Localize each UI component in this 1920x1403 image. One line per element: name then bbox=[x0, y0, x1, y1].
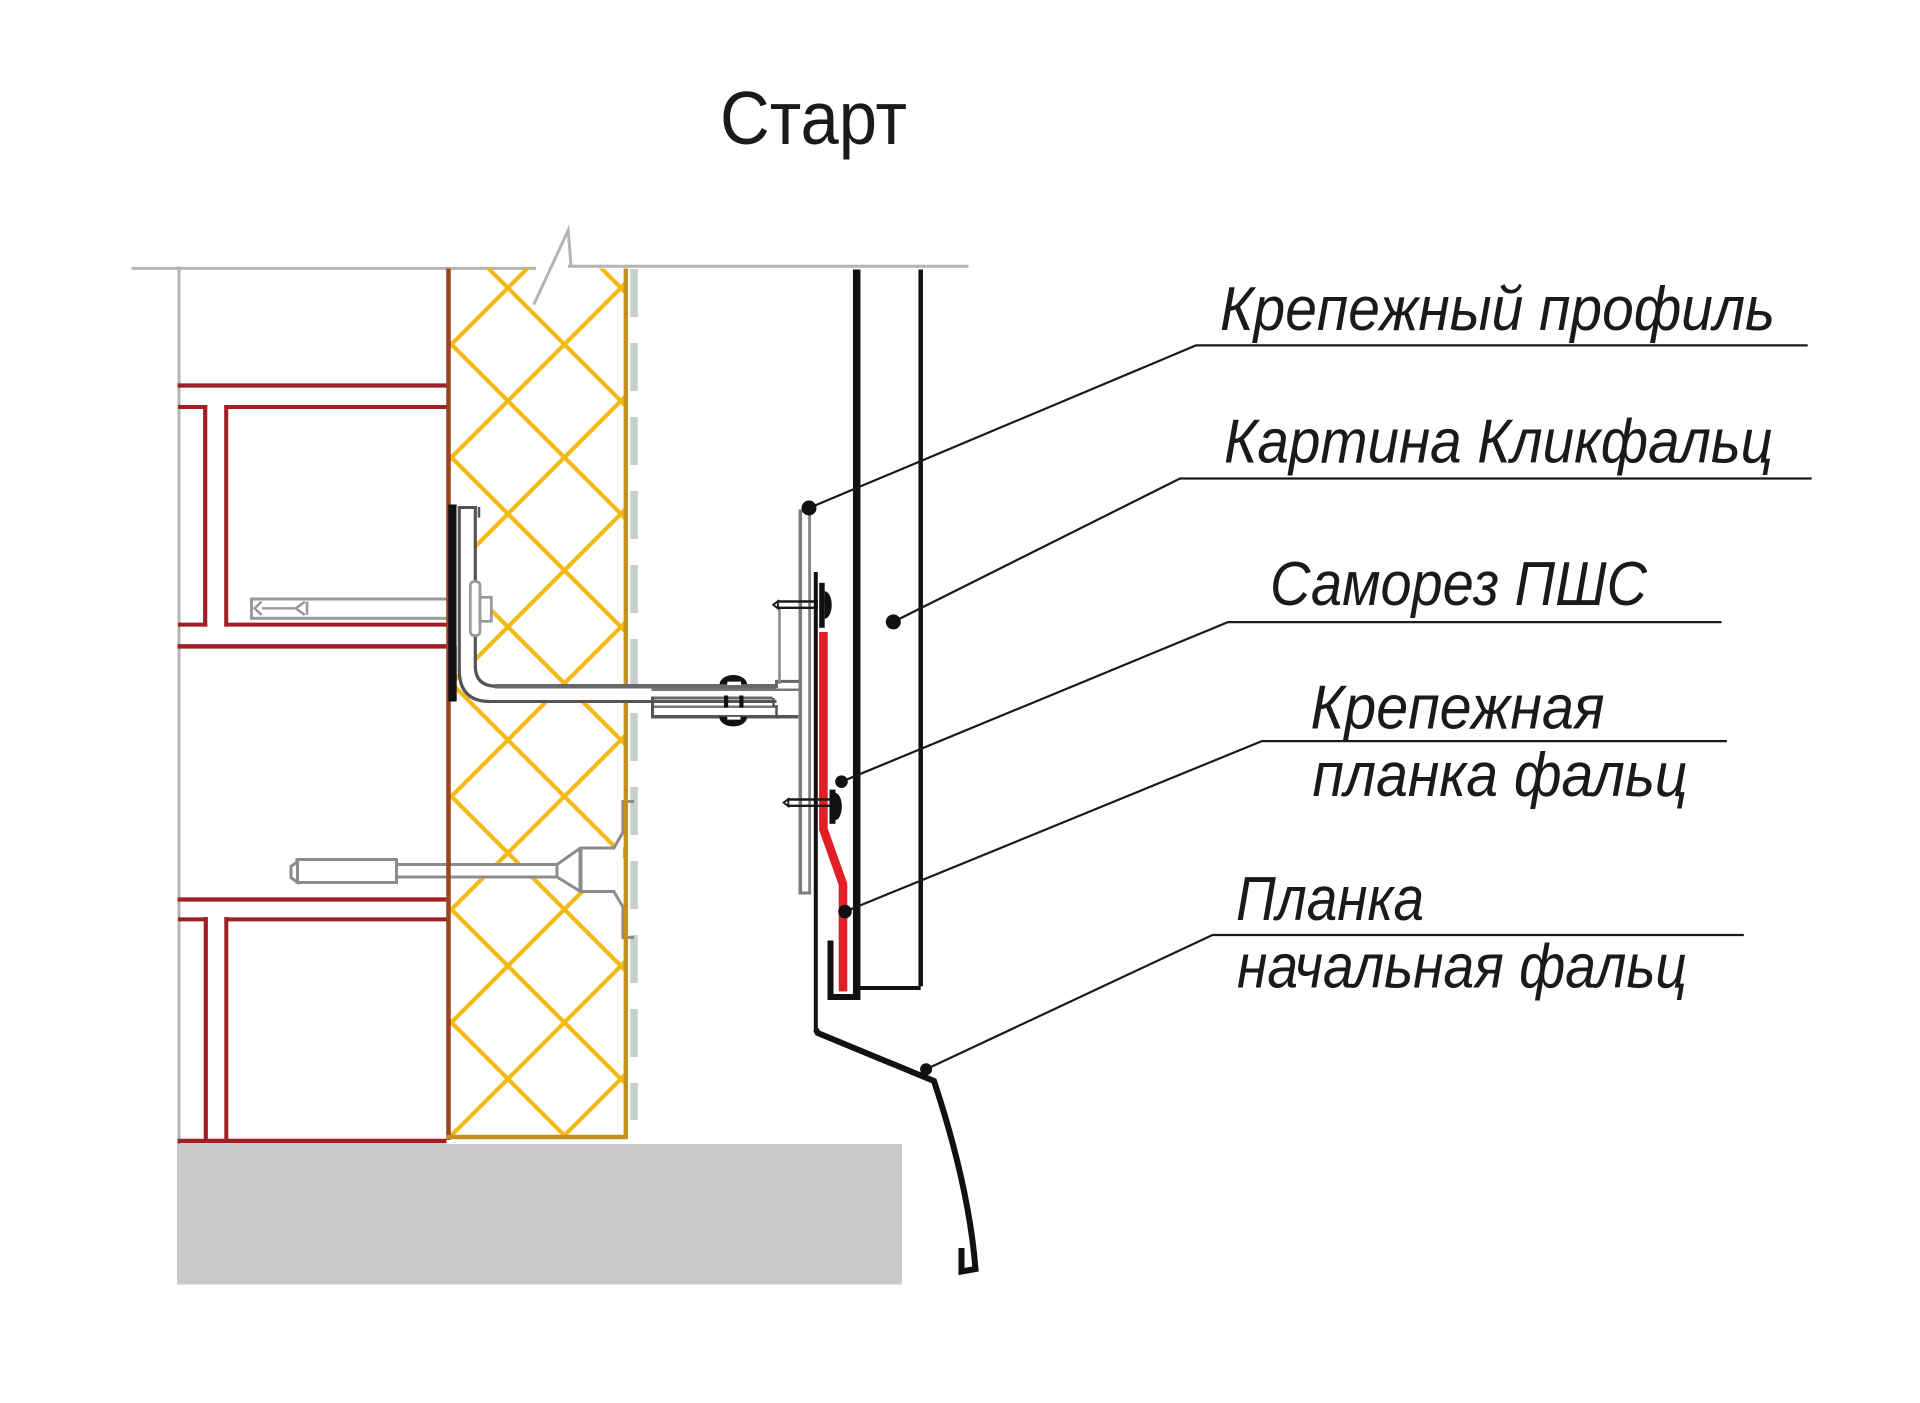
svg-text:планка фальц: планка фальц bbox=[1313, 741, 1688, 810]
svg-text:Планка: Планка bbox=[1236, 865, 1424, 934]
svg-text:Крепежный профиль: Крепежный профиль bbox=[1220, 275, 1775, 344]
svg-text:Картина Кликфальц: Картина Кликфальц bbox=[1224, 408, 1773, 477]
svg-text:начальная фальц: начальная фальц bbox=[1237, 933, 1687, 1002]
svg-text:Крепежная: Крепежная bbox=[1311, 674, 1605, 743]
svg-text:Саморез ПШС: Саморез ПШС bbox=[1270, 550, 1648, 619]
svg-text:Старт: Старт bbox=[720, 76, 907, 160]
